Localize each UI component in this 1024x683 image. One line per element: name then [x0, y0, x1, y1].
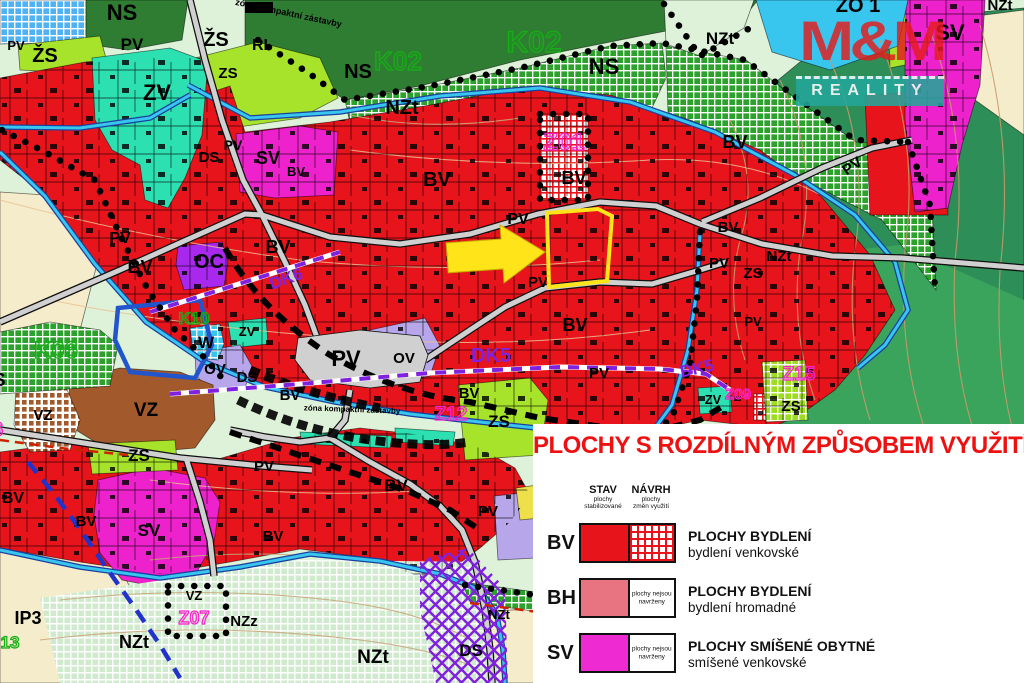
swatch-sv-navrh: plochy nejsounavrženy [628, 635, 675, 671]
map-label: IP3 [14, 608, 41, 628]
swatch-bv-stav [581, 525, 628, 561]
legend-col-navrh: NÁVRH plochy změn využití [621, 484, 681, 510]
map-label: BV [459, 385, 480, 402]
map-label: BV [423, 169, 451, 191]
logo-mm-text: M&M [778, 8, 964, 73]
map-label: ZS [128, 446, 150, 465]
map-label: PV [589, 365, 609, 382]
navrh-header: NÁVRH [621, 484, 681, 496]
map-label: BV [76, 513, 97, 530]
map-label: Z09 [725, 386, 751, 403]
map-label: BV [562, 315, 587, 335]
map-label: ŽS [32, 43, 58, 67]
map-label: ZS [743, 265, 762, 282]
map-label: NZt [385, 97, 419, 119]
navrh-sub1: plochy [621, 496, 681, 503]
map-label: NZt [988, 0, 1013, 14]
map-label: K02 [374, 46, 422, 76]
map-label: PV [528, 274, 548, 291]
map-label: Z07 [178, 608, 209, 628]
navrh-sub2: změn využití [621, 503, 681, 510]
map-label: DS [199, 149, 220, 166]
map-label: PV [121, 35, 144, 54]
map-label: NZt [119, 632, 149, 652]
legend-title: PLOCHY S ROZDÍLNÝM ZPŮSOBEM VYUŽITÍ [533, 432, 1024, 460]
sv-sub: smíšené venkovské [688, 655, 875, 671]
map-label: PV [331, 346, 361, 371]
legend-panel: PLOCHY S ROZDÍLNÝM ZPŮSOBEM VYUŽITÍ STAV… [533, 424, 1024, 683]
map-label: ŽS [203, 27, 229, 51]
legend-code-bv: BV [547, 532, 575, 555]
map-label: ZV [143, 80, 171, 105]
map-label: OC [194, 251, 224, 273]
map-label: K06 [34, 337, 78, 364]
map-label: BV [722, 132, 747, 152]
map-label: DS [237, 369, 258, 386]
map-label: BV [561, 168, 586, 188]
map-label: BV [265, 237, 290, 257]
map-label: K02 [506, 26, 561, 59]
map-label: BV [384, 476, 408, 495]
legend-desc-bh: PLOCHY BYDLENÍ bydlení hromadné [688, 583, 811, 616]
map-label: BV [287, 164, 305, 179]
map-label: PV [7, 38, 25, 53]
map-label: OV [204, 361, 226, 378]
map-label: K10 [178, 309, 209, 328]
legend-desc-sv: PLOCHY SMÍŠENÉ OBYTNÉ smíšené venkovské [688, 638, 875, 671]
legend-swatch-bv [579, 523, 676, 563]
map-label: BV [263, 528, 284, 545]
map-label: NZt [357, 647, 389, 668]
map-label: NZt [706, 29, 735, 48]
bh-sub: bydlení hromadné [688, 600, 811, 616]
map-label: PV [109, 230, 131, 247]
map-label: NZz [230, 613, 258, 630]
map-label: PV [744, 314, 762, 329]
map-label: NS [589, 54, 620, 79]
map-label: Z12 [435, 404, 468, 425]
map-label: PV [507, 211, 529, 228]
map-label: PV [254, 458, 274, 475]
map-label: OV [393, 350, 415, 367]
map-label: BV [2, 490, 25, 507]
map-label: NS [107, 0, 138, 25]
map-label: NZt [767, 248, 792, 265]
swatch-bh-stav [581, 580, 628, 616]
bv-name: PLOCHY BYDLENÍ [688, 528, 811, 545]
map-label: PV [224, 137, 243, 153]
sv-note: plochy nejsounavrženy [630, 646, 675, 661]
map-label: VZ [134, 400, 159, 421]
map-label: Z15 [783, 364, 816, 385]
legend-code-bh: BH [547, 587, 576, 610]
map-label: NS [0, 370, 6, 390]
legend-desc-bv: PLOCHY BYDLENÍ bydlení venkovské [688, 528, 811, 561]
legend-swatch-bh: plochy nejsounavrženy [579, 578, 676, 618]
map-label: Z01 [543, 129, 584, 156]
map-label: Z06 [0, 419, 3, 441]
map-label: PV [709, 255, 729, 272]
map-label: SV [256, 148, 280, 168]
map-label: ZS [218, 65, 237, 82]
map-label: RI [252, 37, 268, 54]
legend-code-sv: SV [547, 642, 574, 665]
swatch-bh-navrh: plochy nejsounavrženy [628, 580, 675, 616]
map-label: VZ [186, 588, 203, 603]
map-label: NS [344, 61, 372, 83]
legend-swatch-sv: plochy nejsounavrženy [579, 633, 676, 673]
swatch-bv-navrh [628, 525, 675, 561]
map-label: ZV [239, 324, 256, 339]
map-label: W [198, 333, 215, 352]
map-label: ZS [488, 412, 510, 431]
map-label: SV [138, 521, 161, 540]
map-label: ZS [781, 398, 800, 415]
map-label: 13 [1, 633, 20, 652]
map-label: ZV [705, 392, 722, 407]
logo-reality-bar: REALITY [796, 76, 944, 106]
zoning-map-screenshot: NSŽSPVZVŽSZSRIzóna kompaktní zástavbyPVN… [0, 0, 1024, 683]
map-label: BV [280, 387, 301, 404]
map-label: VZ [33, 407, 52, 424]
map-label: DK5 [471, 345, 511, 367]
bh-note: plochy nejsounavrženy [630, 591, 675, 606]
logo-reality-text: REALITY [796, 79, 944, 103]
bh-name: PLOCHY BYDLENÍ [688, 583, 811, 600]
map-label: DS [459, 641, 483, 660]
swatch-sv-stav [581, 635, 628, 671]
map-label: PV [478, 503, 498, 520]
bv-sub: bydlení venkovské [688, 545, 811, 561]
map-label: NZt [488, 607, 510, 622]
sv-name: PLOCHY SMÍŠENÉ OBYTNÉ [688, 638, 875, 655]
map-label: BV [718, 219, 739, 236]
map-label: BV [127, 257, 152, 277]
mm-reality-logo: M&M REALITY [790, 22, 952, 104]
